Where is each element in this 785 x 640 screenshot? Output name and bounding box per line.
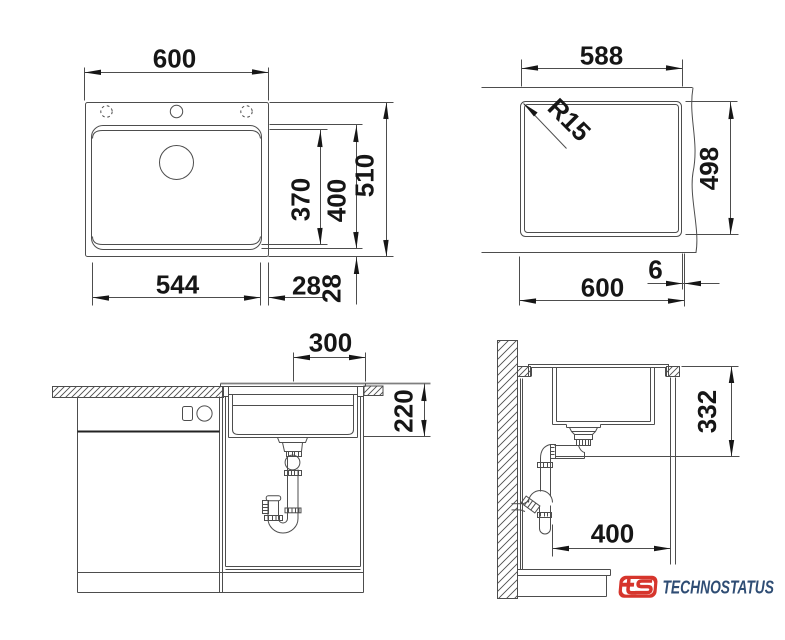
svg-text:510: 510	[350, 154, 380, 197]
svg-text:TECHNOSTATUS: TECHNOSTATUS	[663, 577, 775, 598]
svg-text:544: 544	[156, 270, 200, 300]
svg-text:600: 600	[153, 44, 196, 74]
svg-text:332: 332	[692, 390, 722, 433]
svg-text:600: 600	[581, 273, 624, 303]
svg-text:300: 300	[309, 328, 352, 358]
svg-text:220: 220	[389, 389, 419, 432]
svg-text:6: 6	[648, 255, 662, 285]
svg-text:370: 370	[286, 178, 316, 221]
svg-text:588: 588	[580, 41, 623, 71]
svg-text:498: 498	[694, 147, 724, 190]
svg-text:400: 400	[322, 179, 352, 222]
svg-text:400: 400	[591, 519, 634, 549]
svg-text:28: 28	[317, 274, 347, 303]
